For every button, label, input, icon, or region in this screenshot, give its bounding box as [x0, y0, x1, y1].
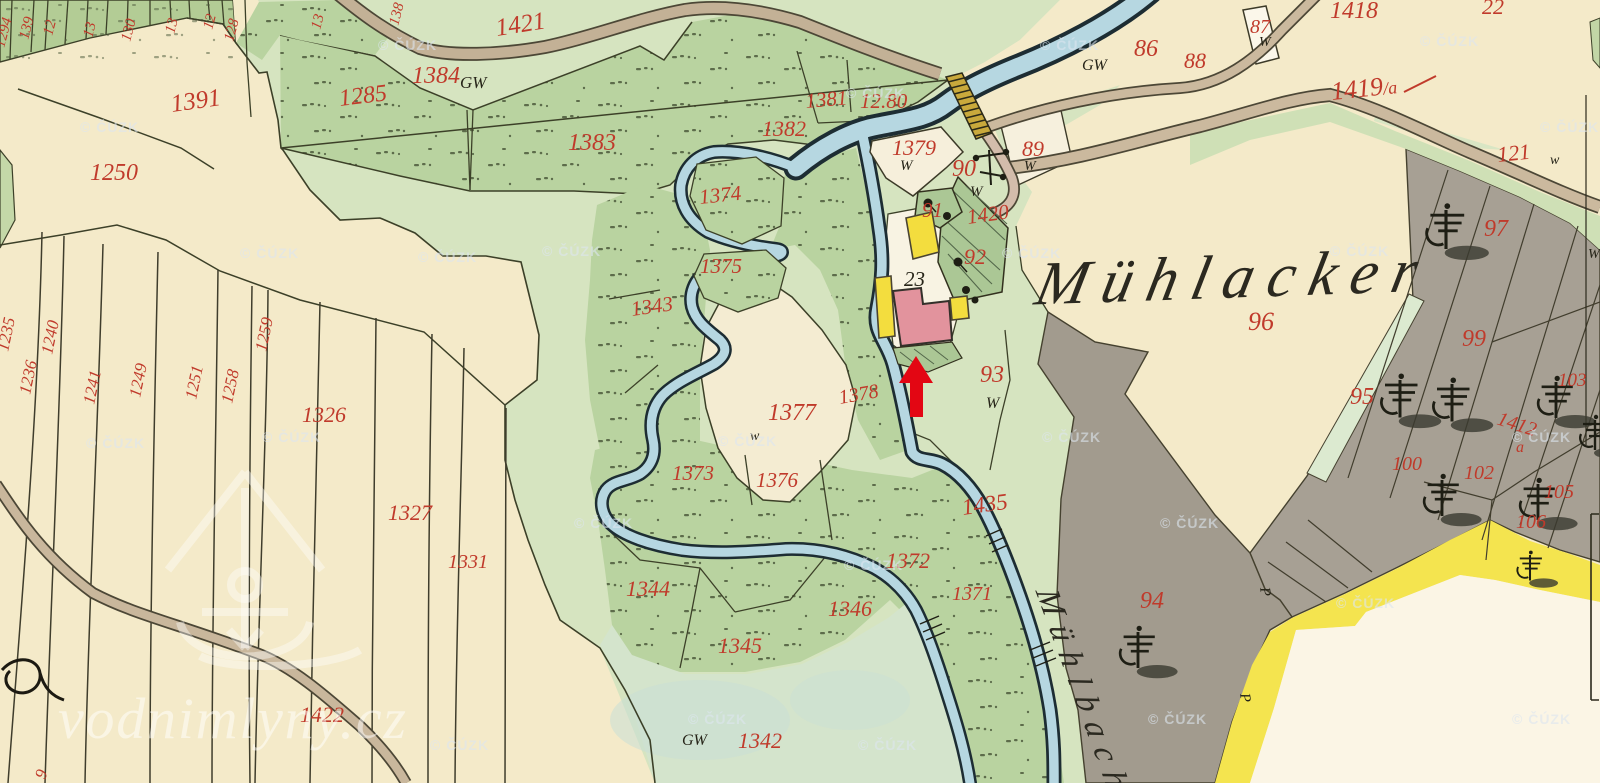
svg-text:© ČÚZK: © ČÚZK — [1040, 36, 1099, 53]
svg-text:86: 86 — [1134, 36, 1158, 62]
svg-text:1382: 1382 — [762, 116, 806, 141]
svg-text:90: 90 — [952, 156, 976, 182]
svg-text:GW: GW — [460, 73, 488, 92]
svg-text:© ČÚZK: © ČÚZK — [1148, 710, 1207, 727]
svg-text:vodnimlyny.cz: vodnimlyny.cz — [58, 686, 406, 751]
svg-text:1418: 1418 — [1330, 0, 1378, 24]
svg-text:1381: 1381 — [804, 85, 848, 113]
svg-text:22: 22 — [1482, 0, 1504, 19]
svg-text:© ČÚZK: © ČÚZK — [1420, 32, 1479, 49]
svg-text:1342: 1342 — [738, 728, 782, 753]
svg-text:© ČÚZK: © ČÚZK — [542, 242, 601, 259]
svg-text:© ČÚZK: © ČÚZK — [688, 710, 747, 727]
svg-text:93: 93 — [980, 362, 1004, 388]
svg-text:© ČÚZK: © ČÚZK — [240, 244, 299, 261]
svg-text:1375: 1375 — [700, 254, 742, 278]
svg-text:© ČÚZK: © ČÚZK — [1160, 514, 1219, 531]
svg-text:1345: 1345 — [718, 633, 762, 658]
svg-text:1377: 1377 — [768, 400, 817, 426]
svg-text:© ČÚZK: © ČÚZK — [262, 428, 321, 445]
svg-text:GW: GW — [1082, 57, 1109, 74]
svg-text:© ČÚZK: © ČÚZK — [378, 36, 437, 53]
svg-text:95: 95 — [1350, 384, 1374, 410]
svg-text:1379: 1379 — [892, 135, 936, 160]
svg-text:© ČÚZK: © ČÚZK — [430, 736, 489, 753]
svg-text:1327: 1327 — [388, 500, 433, 525]
svg-text:© ČÚZK: © ČÚZK — [846, 84, 905, 101]
svg-text:W: W — [986, 395, 1001, 412]
svg-text:1346: 1346 — [828, 596, 872, 621]
svg-text:© ČÚZK: © ČÚZK — [1512, 428, 1571, 445]
svg-text:W: W — [1588, 247, 1600, 262]
svg-text:© ČÚZK: © ČÚZK — [418, 248, 477, 265]
svg-text:© ČÚZK: © ČÚZK — [844, 556, 903, 573]
svg-text:89: 89 — [1022, 136, 1044, 161]
svg-text:© ČÚZK: © ČÚZK — [1330, 242, 1389, 259]
svg-text:91: 91 — [922, 198, 943, 222]
svg-text:© ČÚZK: © ČÚZK — [86, 434, 145, 451]
svg-text:1376: 1376 — [756, 468, 799, 492]
svg-text:1374: 1374 — [698, 181, 743, 209]
svg-text:© ČÚZK: © ČÚZK — [1002, 244, 1061, 261]
svg-text:1383: 1383 — [568, 130, 616, 156]
svg-text:96: 96 — [1248, 307, 1274, 336]
svg-text:105: 105 — [1544, 481, 1574, 503]
svg-text:102: 102 — [1464, 462, 1494, 484]
svg-text:1326: 1326 — [302, 402, 346, 427]
svg-text:© ČÚZK: © ČÚZK — [718, 432, 777, 449]
svg-text:© ČÚZK: © ČÚZK — [1042, 428, 1101, 445]
svg-text:1373: 1373 — [672, 461, 714, 485]
svg-text:1250: 1250 — [90, 160, 138, 186]
svg-text:W: W — [1259, 35, 1272, 50]
svg-text:w: w — [1550, 153, 1560, 168]
svg-text:© ČÚZK: © ČÚZK — [1336, 594, 1395, 611]
svg-text:106: 106 — [1516, 511, 1546, 533]
svg-text:94: 94 — [1140, 588, 1164, 614]
svg-text:W: W — [1024, 159, 1037, 174]
svg-text:© ČÚZK: © ČÚZK — [80, 118, 139, 135]
svg-text:W: W — [970, 184, 984, 200]
svg-text:92: 92 — [964, 244, 986, 269]
svg-text:GW: GW — [682, 732, 709, 749]
svg-text:100: 100 — [1392, 453, 1422, 475]
svg-text:© ČÚZK: © ČÚZK — [1540, 118, 1599, 135]
svg-text:© ČÚZK: © ČÚZK — [858, 736, 917, 753]
svg-text:121: 121 — [1496, 139, 1531, 167]
svg-text:103: 103 — [1558, 370, 1587, 391]
svg-text:97: 97 — [1484, 216, 1509, 242]
svg-text:W: W — [900, 158, 914, 174]
svg-text:88: 88 — [1184, 48, 1206, 73]
svg-text:99: 99 — [1462, 326, 1486, 352]
svg-text:1384: 1384 — [412, 63, 460, 89]
svg-text:© ČÚZK: © ČÚZK — [1512, 710, 1571, 727]
svg-text:1331: 1331 — [448, 551, 488, 573]
svg-text:23: 23 — [904, 267, 925, 291]
svg-text:1344: 1344 — [626, 576, 670, 601]
svg-text:1371: 1371 — [952, 583, 992, 605]
svg-text:© ČÚZK: © ČÚZK — [574, 514, 633, 531]
